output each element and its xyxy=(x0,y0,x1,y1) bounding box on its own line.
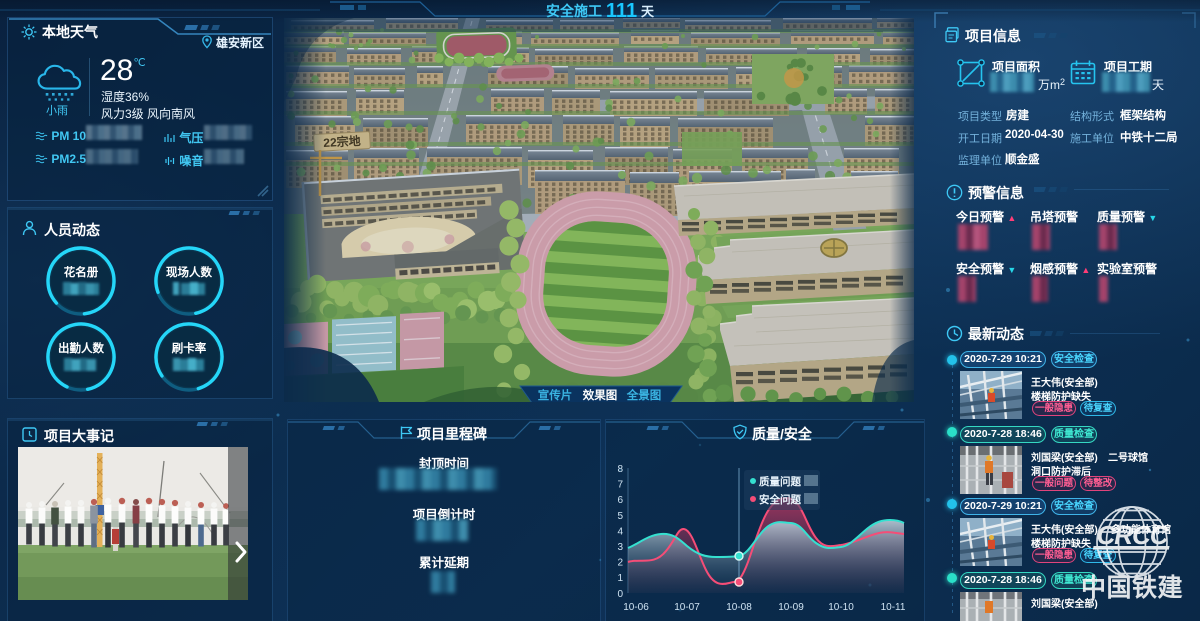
svg-text:安全问题: 安全问题 xyxy=(759,493,801,506)
svg-text:10-07: 10-07 xyxy=(674,602,700,613)
svg-text:3: 3 xyxy=(617,542,623,553)
svg-text:10-11: 10-11 xyxy=(881,602,906,613)
svg-text:出勤人数: 出勤人数 xyxy=(58,341,104,355)
svg-text:6: 6 xyxy=(617,495,623,506)
svg-text:10-06: 10-06 xyxy=(623,602,649,613)
svg-text:宣传片: 宣传片 xyxy=(538,388,573,402)
svg-text:5: 5 xyxy=(617,511,623,522)
svg-text:0: 0 xyxy=(617,589,623,600)
svg-text:花名册: 花名册 xyxy=(64,265,99,279)
svg-text:10-09: 10-09 xyxy=(778,602,804,613)
svg-text:10-08: 10-08 xyxy=(726,602,752,613)
svg-text:效果图: 效果图 xyxy=(583,388,618,402)
svg-text:8: 8 xyxy=(617,464,623,475)
svg-text:4: 4 xyxy=(617,526,623,537)
svg-text:全景图: 全景图 xyxy=(626,388,662,402)
svg-text:CRCC: CRCC xyxy=(1096,520,1169,550)
svg-text:现场人数: 现场人数 xyxy=(166,265,212,279)
svg-text:7: 7 xyxy=(617,480,623,491)
svg-text:中国铁建: 中国铁建 xyxy=(1081,574,1183,602)
svg-text:2: 2 xyxy=(617,558,623,569)
svg-text:1: 1 xyxy=(617,573,623,584)
svg-text:10-10: 10-10 xyxy=(828,602,854,613)
svg-text:质量问题: 质量问题 xyxy=(759,475,801,488)
svg-text:刷卡率: 刷卡率 xyxy=(172,341,207,355)
